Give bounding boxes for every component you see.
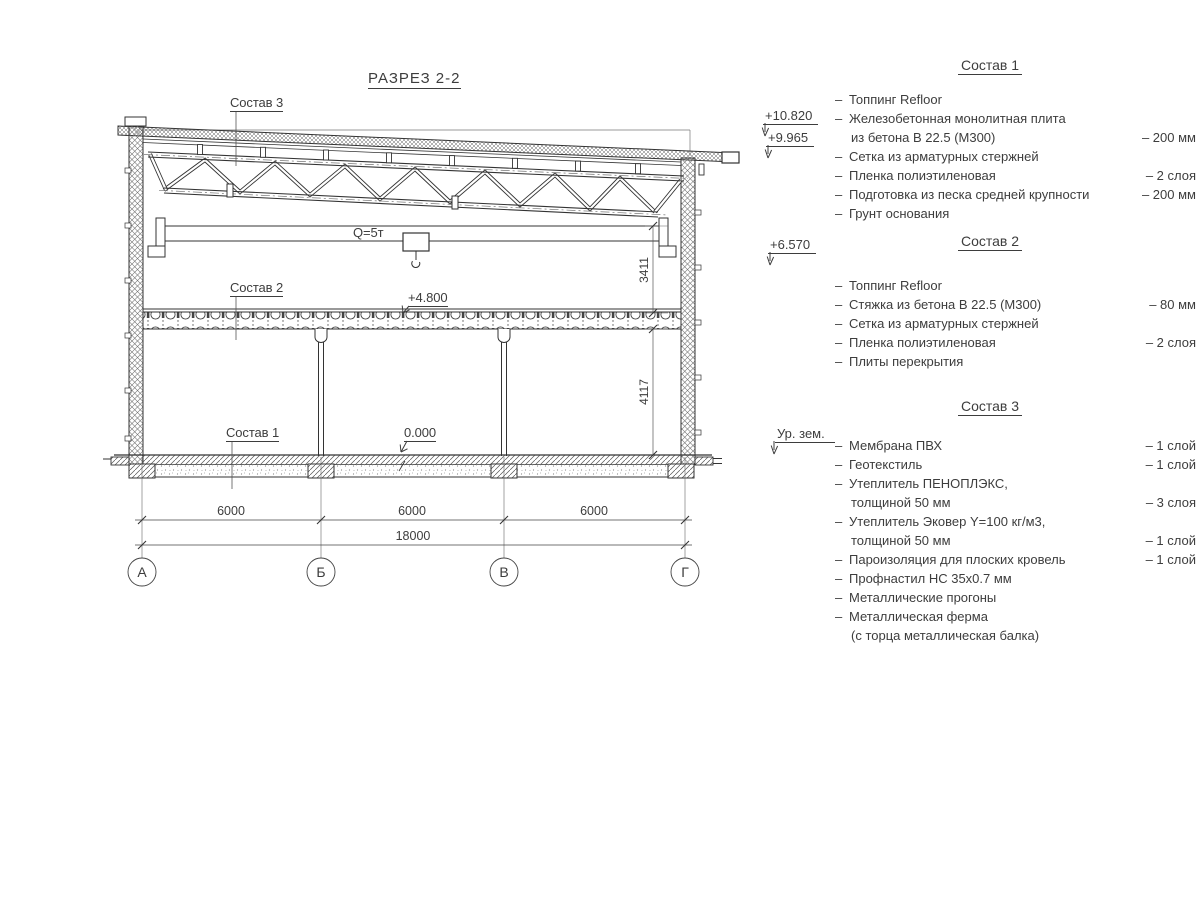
crane-capacity-label: Q=5т	[353, 225, 384, 240]
layer-text: Утеплитель Эковер Y=100 кг/м3,	[849, 512, 1045, 531]
layer-item: –Металлические прогоны	[835, 588, 1196, 607]
ground-level-label: Ур. зем.	[775, 426, 835, 443]
crane-trolley	[403, 233, 429, 251]
layer-text: (с торца металлическая балка)	[849, 626, 1039, 645]
layer-dash: –	[835, 147, 849, 166]
layer-item: –Сетка из арматурных стержней	[835, 314, 1196, 333]
panel-elevation-10820: +10.820	[763, 108, 818, 123]
dim-span-3: 6000	[564, 504, 624, 518]
callout-sostav-3: Состав 3	[230, 95, 283, 112]
layer-value: – 1 слой	[1146, 550, 1196, 569]
section-2-layers: –Топпинг Refloor–Стяжка из бетона В 22.5…	[835, 276, 1196, 371]
layer-value: – 2 слоя	[1146, 333, 1196, 352]
layer-item: –Металлическая ферма	[835, 607, 1196, 626]
dim-span-1: 6000	[201, 504, 261, 518]
layer-value: – 1 слой	[1146, 436, 1196, 455]
layer-text: Мембрана ПВХ	[849, 436, 942, 455]
layer-dash: –	[835, 550, 849, 569]
layer-dash: –	[835, 512, 849, 531]
layer-dash: –	[835, 314, 849, 333]
layer-item: –Сетка из арматурных стержней	[835, 147, 1196, 166]
layer-dash: –	[835, 276, 849, 295]
layer-text: Стяжка из бетона В 22.5 (М300)	[849, 295, 1041, 314]
layer-dash: –	[835, 295, 849, 314]
layer-text: из бетона В 22.5 (М300)	[849, 128, 995, 147]
layer-text: Сетка из арматурных стержней	[849, 314, 1039, 333]
layer-item: толщиной 50 мм– 3 слоя	[835, 493, 1196, 512]
layer-value: – 3 слоя	[1146, 493, 1196, 512]
layer-item: –Утеплитель ПЕНОПЛЭКС,	[835, 474, 1196, 493]
layer-item: –Пароизоляция для плоских кровель– 1 сло…	[835, 550, 1196, 569]
layer-dash: –	[835, 569, 849, 588]
panel-ground-level-mark: Ур. зем.	[775, 426, 835, 441]
layer-item: –Утеплитель Эковер Y=100 кг/м3,	[835, 512, 1196, 531]
layer-dash: –	[835, 352, 849, 371]
layer-item: (с торца металлическая балка)	[835, 626, 1196, 645]
layer-item: –Грунт основания	[835, 204, 1196, 223]
axis-a: А	[128, 564, 156, 580]
layer-dash: –	[835, 474, 849, 493]
layer-item: –Пленка полиэтиленовая– 2 слоя	[835, 333, 1196, 352]
layer-dash: –	[835, 185, 849, 204]
layer-item: –Геотекстиль– 1 слой	[835, 455, 1196, 474]
layer-text: Пароизоляция для плоских кровель	[849, 550, 1066, 569]
dim-total: 18000	[378, 529, 448, 543]
section-3-layers: –Мембрана ПВХ– 1 слой–Геотекстиль– 1 сло…	[835, 436, 1196, 645]
layer-dash: –	[835, 455, 849, 474]
layer-dash	[835, 626, 849, 645]
layer-dash: –	[835, 90, 849, 109]
section-1-header: Состав 1	[840, 57, 1140, 73]
layer-text: Профнастил НС 35х0.7 мм	[849, 569, 1012, 588]
layer-text: Подготовка из песка средней крупности	[849, 185, 1089, 204]
floor-slab	[143, 309, 681, 329]
layer-dash: –	[835, 109, 849, 128]
layer-item: –Топпинг Refloor	[835, 276, 1196, 295]
ground-floor	[103, 455, 722, 477]
section-2-header: Состав 2	[840, 233, 1140, 249]
layer-dash: –	[835, 436, 849, 455]
layer-item: толщиной 50 мм– 1 слой	[835, 531, 1196, 550]
elevation-0000: 0.000	[404, 425, 436, 442]
dim-span-2: 6000	[382, 504, 442, 518]
layer-dash	[835, 493, 849, 512]
layer-item: –Стяжка из бетона В 22.5 (М300)– 80 мм	[835, 295, 1196, 314]
layer-text: Металлическая ферма	[849, 607, 988, 626]
layer-value: – 1 слой	[1146, 455, 1196, 474]
crane-beam	[148, 218, 676, 267]
layer-value: – 2 слоя	[1146, 166, 1196, 185]
layer-dash	[835, 128, 849, 147]
axis-bubbles	[128, 558, 699, 586]
layer-text: Грунт основания	[849, 204, 949, 223]
layer-item: –Подготовка из песка средней крупности– …	[835, 185, 1196, 204]
layer-text: толщиной 50 мм	[849, 493, 951, 512]
drawing-sheet: РАЗРЕЗ 2-2 Состав 3 Состав 2 Состав 1 Q=…	[0, 0, 1200, 900]
down-arrow-icon	[764, 145, 776, 160]
layer-dash: –	[835, 166, 849, 185]
layer-item: –Железобетонная монолитная плита	[835, 109, 1196, 128]
layer-text: Топпинг Refloor	[849, 276, 942, 295]
drawing-title: РАЗРЕЗ 2-2	[368, 70, 461, 89]
layer-value: – 200 мм	[1142, 128, 1196, 147]
layer-text: Пленка полиэтиленовая	[849, 166, 996, 185]
layer-dash: –	[835, 333, 849, 352]
panel-elevation-6570: +6.570	[768, 237, 816, 252]
left-wall	[125, 117, 146, 464]
down-arrow-icon	[766, 252, 778, 267]
layer-item: из бетона В 22.5 (М300)– 200 мм	[835, 128, 1196, 147]
layer-text: Плиты перекрытия	[849, 352, 963, 371]
layer-item: –Топпинг Refloor	[835, 90, 1196, 109]
section-1-layers: –Топпинг Refloor–Железобетонная монолитн…	[835, 90, 1196, 223]
layer-value: – 80 мм	[1149, 295, 1196, 314]
crane-hook	[412, 251, 420, 267]
layer-item: –Пленка полиэтиленовая– 2 слоя	[835, 166, 1196, 185]
section-drawing	[0, 0, 740, 620]
layer-text: Геотекстиль	[849, 455, 922, 474]
layer-text: Пленка полиэтиленовая	[849, 333, 996, 352]
layer-dash: –	[835, 607, 849, 626]
section-3-header: Состав 3	[840, 398, 1140, 414]
dim-4117: 4117	[637, 370, 653, 414]
layer-text: Топпинг Refloor	[849, 90, 942, 109]
layer-item: –Плиты перекрытия	[835, 352, 1196, 371]
dim-3411: 3411	[637, 248, 653, 292]
callout-sostav-1: Состав 1	[226, 425, 279, 442]
layer-dash: –	[835, 588, 849, 607]
layer-value: – 200 мм	[1142, 185, 1196, 204]
layer-item: –Профнастил НС 35х0.7 мм	[835, 569, 1196, 588]
layer-dash: –	[835, 204, 849, 223]
layer-text: Сетка из арматурных стержней	[849, 147, 1039, 166]
layer-item: –Мембрана ПВХ– 1 слой	[835, 436, 1196, 455]
callout-sostav-2: Состав 2	[230, 280, 283, 297]
layer-dash	[835, 531, 849, 550]
layer-text: Железобетонная монолитная плита	[849, 109, 1066, 128]
layer-text: Утеплитель ПЕНОПЛЭКС,	[849, 474, 1008, 493]
right-wall	[681, 158, 701, 464]
axis-b: Б	[307, 564, 335, 580]
axis-g: Г	[671, 564, 699, 580]
section-3-title: Состав 3	[958, 398, 1022, 416]
layer-text: Металлические прогоны	[849, 588, 996, 607]
axis-v: В	[490, 564, 518, 580]
layer-text: толщиной 50 мм	[849, 531, 951, 550]
panel-elevation-9965: +9.965	[766, 130, 814, 145]
elevation-4800: +4.800	[408, 290, 448, 307]
down-arrow-icon	[770, 441, 782, 456]
section-2-title: Состав 2	[958, 233, 1022, 251]
layer-value: – 1 слой	[1146, 531, 1196, 550]
section-1-title: Состав 1	[958, 57, 1022, 75]
